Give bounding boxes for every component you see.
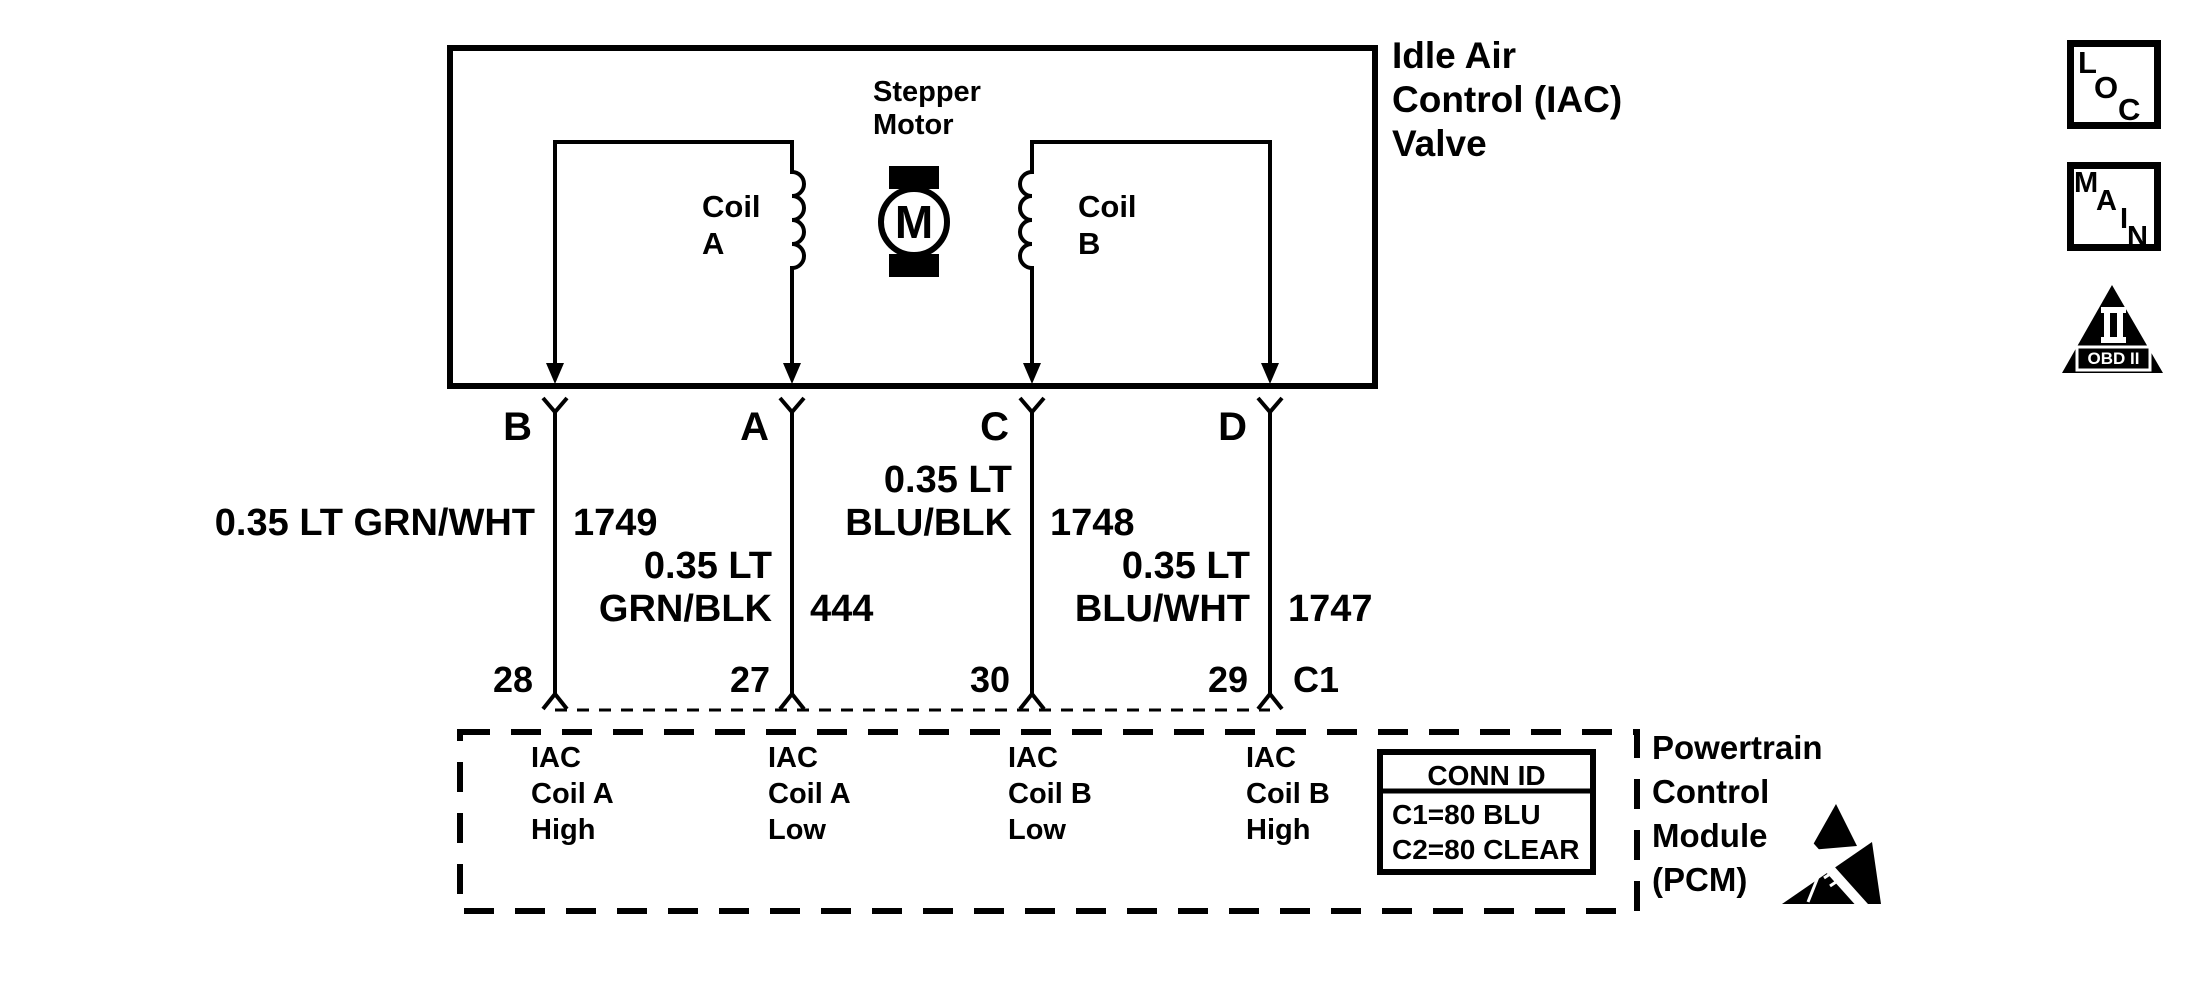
wire-c-circuit: 1748 (1050, 504, 1135, 542)
stepper-motor-label-line1: Stepper (873, 78, 981, 107)
pcm-name-line2: Control (1652, 775, 1769, 808)
connector-fork-icon (1020, 694, 1044, 709)
wire-d-circuit: 1747 (1288, 590, 1373, 628)
pcm-pin-b-line3: High (531, 816, 595, 845)
arrow-down-icon (783, 363, 801, 384)
pcm-pin-d-line1: IAC (1246, 744, 1296, 773)
pcm-pin-c-line3: Low (1008, 816, 1066, 845)
obd2-badge-label: OBD II (2077, 347, 2150, 370)
connector-fork-icon (780, 398, 804, 412)
pin-28: 28 (493, 662, 533, 698)
stepper-motor-label-line2: Motor (873, 111, 954, 140)
loc-badge-icon: L O C (2067, 40, 2161, 129)
pcm-pin-d-line2: Coil B (1246, 780, 1330, 809)
pin-30: 30 (970, 662, 1010, 698)
connector-fork-icon (1258, 398, 1282, 412)
iac-valve-name-line1: Idle Air (1392, 37, 1516, 74)
terminal-c: C (980, 407, 1009, 447)
iac-valve-name-line2: Control (IAC) (1392, 81, 1622, 118)
connector-fork-icon (780, 694, 804, 709)
arrow-down-icon (1023, 363, 1041, 384)
wire-c-label-line1: 0.35 LT (884, 461, 1012, 499)
pcm-pin-a-line1: IAC (768, 744, 818, 773)
wire-c-label-line2: BLU/BLK (845, 504, 1012, 542)
loc-letter-o: O (2094, 72, 2118, 103)
motor-letter: M (884, 196, 944, 248)
pcm-pin-b-line2: Coil A (531, 780, 614, 809)
diagram-linework (0, 0, 2211, 988)
coil-b-label-line2: B (1078, 228, 1100, 259)
pcm-pin-a-line2: Coil A (768, 780, 851, 809)
pcm-pin-b-line1: IAC (531, 744, 581, 773)
wire-b-label: 0.35 LT GRN/WHT (215, 504, 535, 542)
pin-27: 27 (730, 662, 770, 698)
conn-id-header: CONN ID (1380, 762, 1593, 790)
iac-valve-name-line3: Valve (1392, 125, 1487, 162)
wire-a-circuit: 444 (810, 590, 873, 628)
conn-id-row2: C2=80 CLEAR (1392, 836, 1580, 864)
pcm-pin-a-line3: Low (768, 816, 826, 845)
arrow-down-icon (1261, 363, 1279, 384)
connector-id: C1 (1293, 662, 1339, 698)
wire-d-label-line1: 0.35 LT (1122, 547, 1250, 585)
main-badge-icon: M A I N (2067, 162, 2161, 251)
conn-id-row1: C1=80 BLU (1392, 801, 1541, 829)
connector-fork-icon (1258, 694, 1282, 709)
pcm-pin-c-line2: Coil B (1008, 780, 1092, 809)
pcm-name-line3: Module (1652, 819, 1767, 852)
pcm-pin-d-line3: High (1246, 816, 1310, 845)
wiring-diagram-page: Idle Air Control (IAC) Valve Stepper Mot… (0, 0, 2211, 988)
terminal-b: B (503, 407, 532, 447)
wire-a-label-line2: GRN/BLK (599, 590, 772, 628)
esd-warning-icon (1782, 804, 1881, 916)
coil-a-winding-icon (555, 142, 804, 366)
main-letter-n: N (2127, 223, 2148, 252)
coil-a-label-line2: A (702, 228, 724, 259)
wire-d-label-line2: BLU/WHT (1075, 590, 1250, 628)
pcm-name-line1: Powertrain (1652, 731, 1823, 764)
wire-a-label-line1: 0.35 LT (644, 547, 772, 585)
main-letter-m: M (2074, 169, 2098, 198)
terminal-a: A (740, 407, 769, 447)
terminal-d: D (1218, 407, 1247, 447)
wire-b-circuit: 1749 (573, 504, 658, 542)
pin-29: 29 (1208, 662, 1248, 698)
main-letter-a: A (2096, 187, 2117, 216)
coil-b-label-line1: Coil (1078, 191, 1137, 222)
connector-fork-icon (543, 694, 567, 709)
connector-fork-icon (1020, 398, 1044, 412)
coil-b-winding-icon (1020, 142, 1270, 366)
loc-letter-c: C (2118, 94, 2140, 125)
arrow-down-icon (546, 363, 564, 384)
connector-fork-icon (543, 398, 567, 412)
pcm-pin-c-line1: IAC (1008, 744, 1058, 773)
pcm-name-line4: (PCM) (1652, 863, 1747, 896)
coil-a-label-line1: Coil (702, 191, 761, 222)
